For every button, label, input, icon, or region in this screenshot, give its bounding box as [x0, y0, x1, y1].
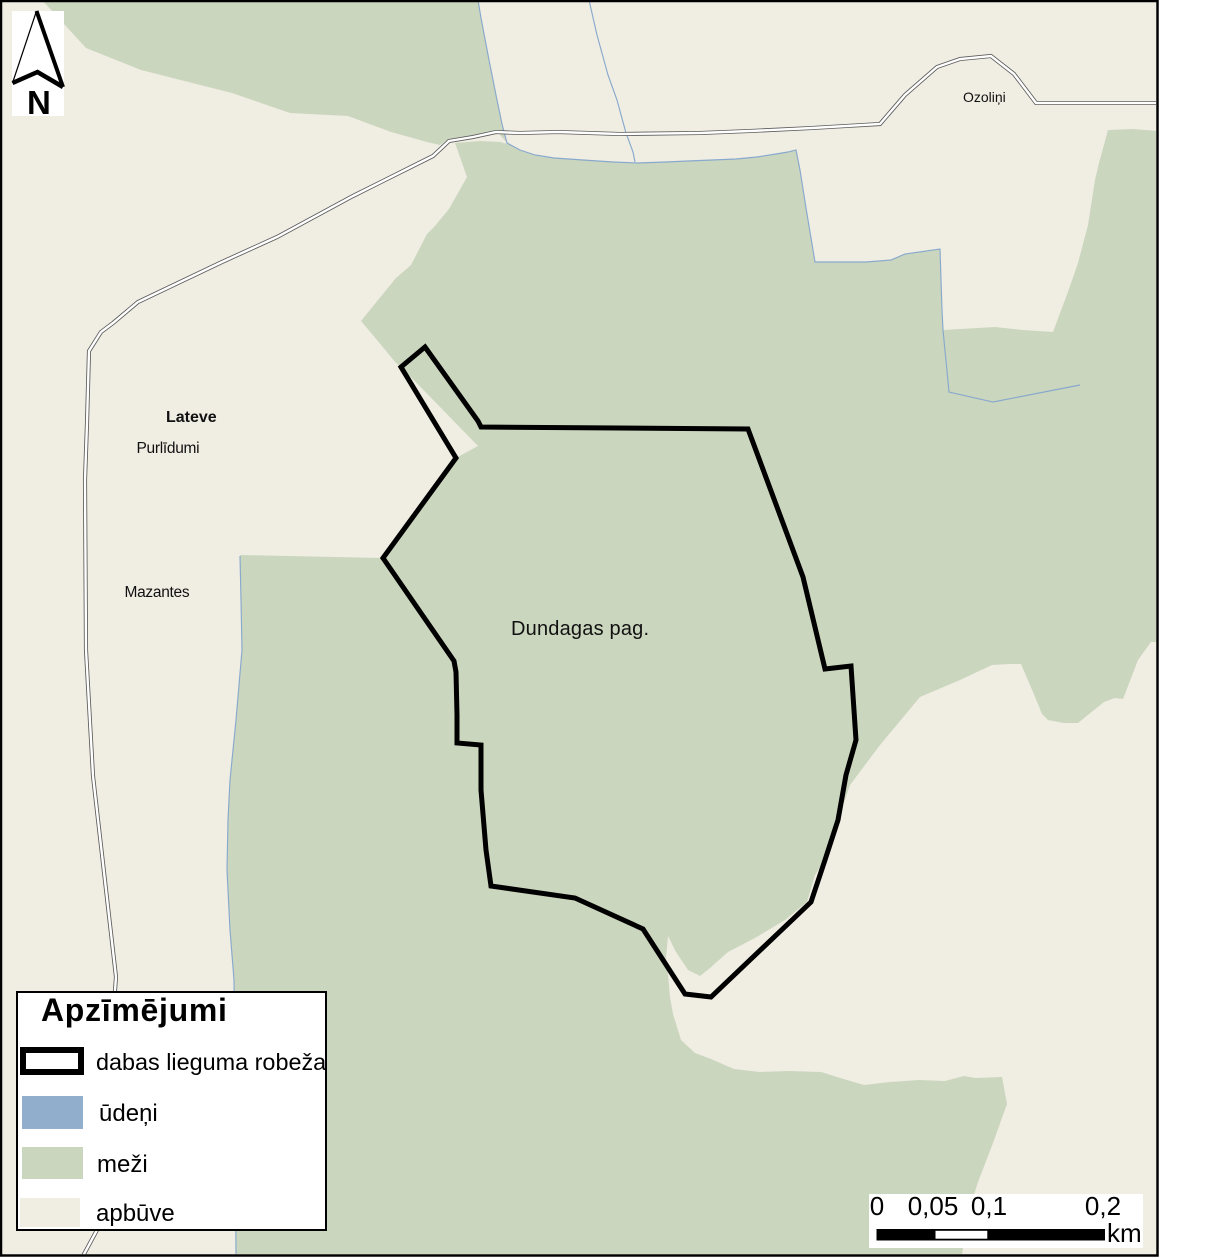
svg-text:Mazantes: Mazantes: [125, 584, 190, 601]
svg-text:0,05: 0,05: [908, 1191, 959, 1221]
svg-text:dabas lieguma robeža: dabas lieguma robeža: [96, 1049, 327, 1075]
svg-text:ūdeņi: ūdeņi: [99, 1100, 158, 1127]
svg-text:N: N: [27, 84, 51, 121]
svg-text:0,1: 0,1: [971, 1191, 1007, 1221]
svg-text:0,2: 0,2: [1085, 1191, 1121, 1221]
svg-text:km: km: [1107, 1218, 1142, 1248]
svg-text:0: 0: [870, 1191, 884, 1221]
svg-text:Lateve: Lateve: [166, 409, 217, 426]
svg-text:Purlīdumi: Purlīdumi: [137, 440, 200, 457]
svg-text:Apzīmējumi: Apzīmējumi: [41, 992, 228, 1028]
svg-text:Dundagas pag.: Dundagas pag.: [511, 618, 649, 640]
svg-text:meži: meži: [97, 1151, 148, 1178]
svg-text:Ozoliņi: Ozoliņi: [963, 89, 1006, 105]
svg-text:apbūve: apbūve: [96, 1200, 175, 1227]
